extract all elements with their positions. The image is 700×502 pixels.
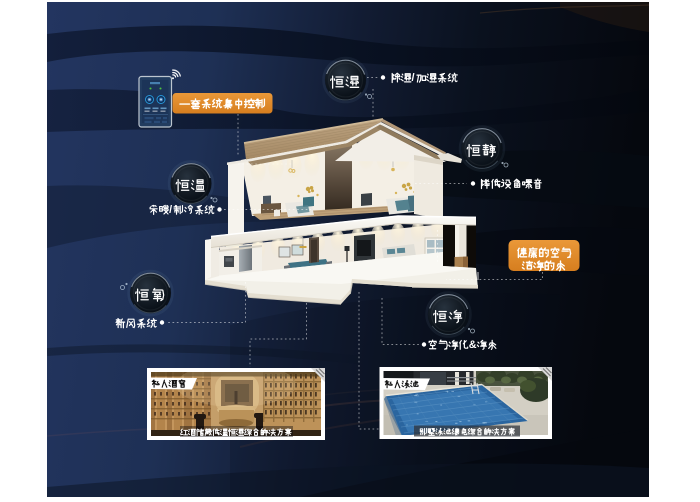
svg-text:&: & — [469, 339, 477, 351]
svg-text:/: / — [412, 72, 415, 84]
svg-text:/: / — [169, 204, 172, 216]
